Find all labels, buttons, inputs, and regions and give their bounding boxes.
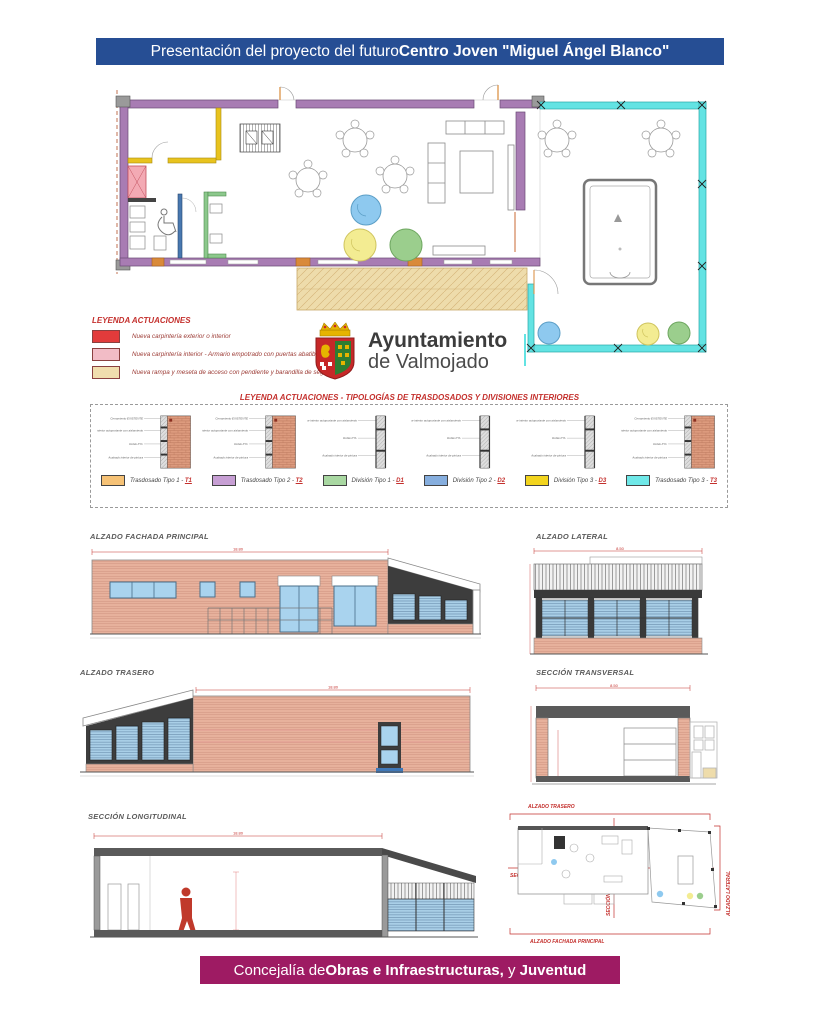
svg-text:Doble PYL: Doble PYL	[129, 442, 143, 446]
logo-name-line1: Ayuntamiento	[368, 330, 507, 351]
svg-text:Acabado interior de pintura: Acabado interior de pintura	[212, 455, 248, 459]
svg-text:Tabique interior autoportante: Tabique interior autoportante con aislam…	[516, 419, 566, 423]
tv	[508, 145, 514, 210]
svg-text:Acabado interior de pintura: Acabado interior de pintura	[107, 455, 143, 459]
svg-text:18.80: 18.80	[233, 547, 244, 552]
type-d1: División Tipo 1 - D1	[323, 475, 404, 486]
longitudinal-title: SECCIÓN LONGITUDINAL	[88, 812, 187, 821]
west-wall	[120, 100, 128, 266]
footer-part3: y	[504, 962, 520, 979]
stray-dimension-mark	[524, 334, 526, 366]
swatch-tan	[92, 366, 120, 379]
trasero-drawing: 18.80	[78, 682, 476, 794]
longitudinal-drawing: 18.80	[86, 826, 480, 944]
svg-text:18.80: 18.80	[328, 685, 339, 690]
porch-elevation-rear	[83, 690, 193, 772]
tv-wall	[516, 112, 525, 210]
crown	[320, 322, 350, 336]
svg-text:18.80: 18.80	[233, 831, 244, 836]
valmojado-shield-icon	[312, 322, 358, 380]
interior-doors	[108, 856, 150, 930]
footer-banner: Concejalía de Obras e Infraestructuras, …	[200, 956, 620, 984]
porch-behind-outline	[690, 722, 717, 778]
key-plan: ALZADO TRASERO SECCIÓN LONGITUDINAL SECC…	[502, 798, 736, 946]
type-t1: Trasdosado Tipo 1 - T1	[101, 475, 192, 486]
partition-detail-d3: Tabique interior autoportante con aislam…	[516, 411, 616, 473]
svg-text:Doble PYL: Doble PYL	[448, 436, 462, 440]
blue-partition	[178, 194, 182, 258]
key-plan-label-right: ALZADO LATERAL	[726, 871, 732, 917]
back-door	[376, 722, 403, 773]
logo-name-line2: de Valmojado	[368, 352, 507, 372]
transversal-title: SECCIÓN TRANSVERSAL	[536, 668, 634, 677]
type-d3: División Tipo 3 - D3	[525, 475, 606, 486]
lateral-drawing: 8.50	[528, 546, 710, 658]
key-plan-label-bottom: ALZADO FACHADA PRINCIPAL	[529, 939, 604, 945]
type-swatches-row: Trasdosado Tipo 1 - T1 Trasdosado Tipo 2…	[91, 473, 727, 486]
svg-text:Acabado interior de pintura: Acabado interior de pintura	[530, 454, 566, 458]
header-title-bold: Centro Joven "Miguel Ángel Blanco"	[399, 43, 669, 61]
footer-part2: Obras e Infraestructuras,	[325, 962, 503, 979]
wall-detail-row: Cerramiento EXISTENTE Trasdosado interio…	[91, 405, 727, 473]
svg-text:Acabado interior de pintura: Acabado interior de pintura	[631, 455, 667, 459]
svg-text:Cerramiento EXISTENTE: Cerramiento EXISTENTE	[110, 417, 143, 421]
interior-cabinet	[624, 728, 676, 776]
header-banner: Presentación del proyecto del futuro Cen…	[96, 38, 724, 65]
svg-text:8.50: 8.50	[610, 683, 619, 688]
swatch-pink	[92, 348, 120, 361]
wall-detail-t3: Cerramiento EXISTENTE Trasdosado interio…	[621, 411, 721, 473]
porch-section	[382, 848, 476, 937]
fachada-principal-drawing: 18.80	[88, 546, 482, 658]
footer-part1: Concejalía de	[234, 962, 326, 979]
key-plan-label-top: ALZADO TRASERO	[527, 804, 575, 810]
svg-text:Cerramiento EXISTENTE: Cerramiento EXISTENTE	[215, 417, 248, 421]
svg-text:Tabique interior autoportante: Tabique interior autoportante con aislam…	[411, 419, 461, 423]
wall-detail-t1: Cerramiento EXISTENTE Trasdosado interio…	[97, 411, 197, 473]
glazed-bays	[536, 598, 698, 638]
shield	[316, 338, 354, 379]
legend-tipologias-title: LEYENDA ACTUACIONES - TIPOLOGÍAS DE TRAS…	[0, 393, 819, 402]
poster-page: Presentación del proyecto del futuro Cen…	[0, 0, 819, 1024]
transversal-drawing: 8.50	[528, 682, 720, 794]
partition-detail-d1: Tabique interior autoportante con aislam…	[307, 411, 407, 473]
svg-text:Doble PYL: Doble PYL	[234, 442, 248, 446]
ayuntamiento-logo: Ayuntamiento de Valmojado	[312, 322, 507, 380]
person-figure	[178, 888, 196, 933]
svg-text:Doble PYL: Doble PYL	[552, 436, 566, 440]
header-title-regular: Presentación del proyecto del futuro	[151, 43, 399, 61]
key-plan-building	[518, 826, 717, 908]
partition-detail-d2: Tabique interior autoportante con aislam…	[411, 411, 511, 473]
access-ramp	[297, 268, 527, 310]
svg-text:Doble PYL: Doble PYL	[343, 436, 357, 440]
swatch-red	[92, 330, 120, 343]
pier	[116, 96, 130, 107]
svg-text:Trasdosado interior autoportan: Trasdosado interior autoportante con ais…	[97, 428, 144, 432]
svg-text:Cerramiento EXISTENTE: Cerramiento EXISTENTE	[634, 417, 667, 421]
legend-tipologias-box: Cerramiento EXISTENTE Trasdosado interio…	[90, 404, 728, 508]
porch-poufs	[538, 322, 690, 345]
wardrobe	[128, 166, 146, 198]
svg-text:Trasdosado interior autoportan: Trasdosado interior autoportante con ais…	[621, 428, 668, 432]
type-d2: División Tipo 2 - D2	[424, 475, 505, 486]
svg-text:Acabado interior de pintura: Acabado interior de pintura	[321, 454, 357, 458]
porch-elevation	[388, 558, 480, 634]
svg-text:Tabique interior autoportante: Tabique interior autoportante con aislam…	[307, 419, 357, 423]
south-wall	[120, 258, 540, 266]
svg-text:Acabado interior de pintura: Acabado interior de pintura	[426, 454, 462, 458]
shelving-unit	[240, 124, 280, 152]
type-t2: Trasdosado Tipo 2 - T2	[212, 475, 303, 486]
type-t3: Trasdosado Tipo 3 - T3	[626, 475, 717, 486]
trasero-title: ALZADO TRASERO	[80, 668, 154, 677]
wall-detail-t2: Cerramiento EXISTENTE Trasdosado interio…	[202, 411, 302, 473]
svg-text:Doble PYL: Doble PYL	[653, 442, 667, 446]
svg-text:Trasdosado interior autoportan: Trasdosado interior autoportante con ais…	[202, 428, 249, 432]
fachada-principal-title: ALZADO FACHADA PRINCIPAL	[90, 532, 209, 541]
lateral-title: ALZADO LATERAL	[536, 532, 608, 541]
footer-part4: Juventud	[520, 962, 587, 979]
svg-text:8.50: 8.50	[616, 546, 625, 551]
pool-table	[584, 180, 656, 284]
